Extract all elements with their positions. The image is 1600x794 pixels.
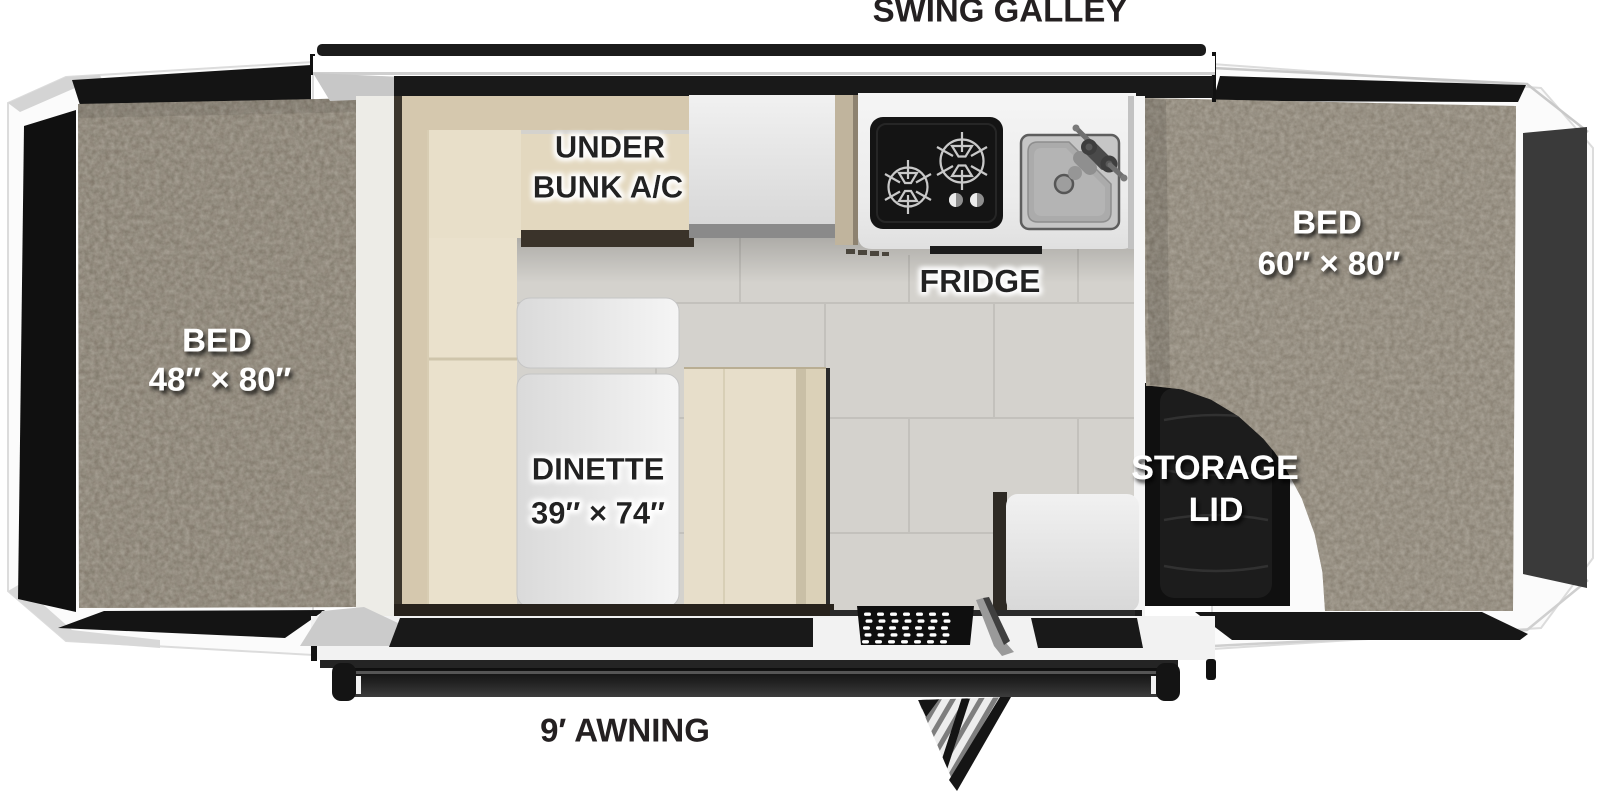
svg-text:BED: BED: [182, 322, 252, 359]
svg-text:60″ × 80″: 60″ × 80″: [1258, 245, 1401, 282]
svg-text:STORAGE: STORAGE: [1131, 449, 1299, 487]
svg-text:BED: BED: [1292, 204, 1362, 241]
svg-text:FRIDGE: FRIDGE: [920, 263, 1041, 299]
svg-text:UNDER: UNDER: [555, 130, 665, 165]
svg-text:39″ × 74″: 39″ × 74″: [531, 496, 665, 531]
svg-text:DINETTE: DINETTE: [532, 452, 665, 487]
svg-text:BUNK A/C: BUNK A/C: [533, 170, 683, 205]
svg-text:SWING GALLEY: SWING GALLEY: [873, 0, 1128, 29]
svg-text:LID: LID: [1189, 491, 1244, 529]
svg-text:48″ × 80″: 48″ × 80″: [149, 361, 292, 398]
svg-text:9′ AWNING: 9′ AWNING: [540, 712, 710, 749]
